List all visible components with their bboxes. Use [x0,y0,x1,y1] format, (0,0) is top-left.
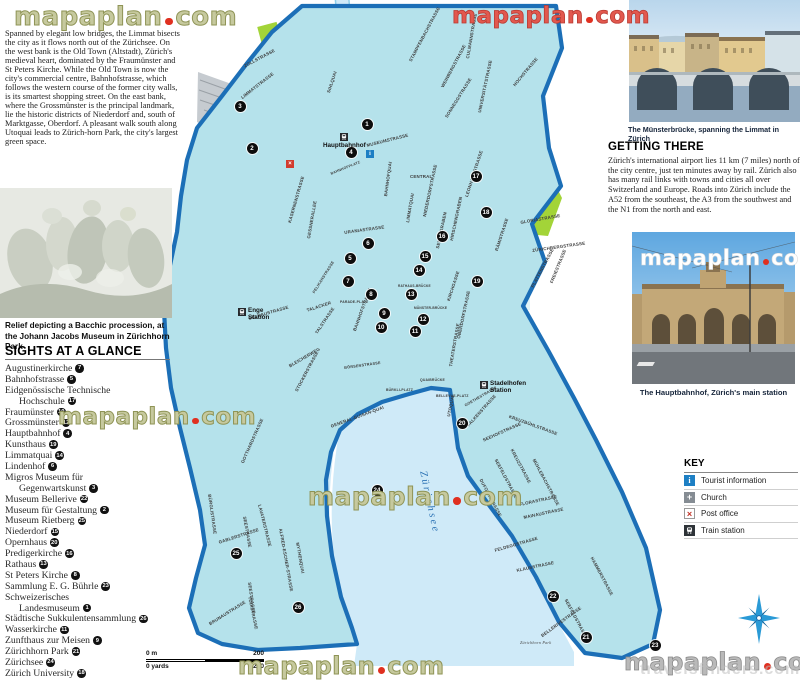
logo-tld: com [175,2,237,32]
sight-number-badge: 24 [46,658,55,667]
key-list: iTourist information+Church×Post officeT… [684,473,798,539]
munsterbrucke-photo [629,0,800,122]
sight-item: Opernhaus20 [5,537,179,548]
key-item-label: Train station [701,526,745,535]
sight-number-badge: 5 [67,375,76,384]
map-key: KEY iTourist information+Church×Post off… [684,458,798,539]
tourist-info-icon: i [684,475,695,486]
sight-label: Limmatquai [5,450,52,461]
sight-number-badge: 6 [48,462,57,471]
sight-label: Kunsthaus [5,439,46,450]
key-item-label: Post office [701,509,738,518]
sight-number-badge: 26 [139,615,148,624]
logo-text: mapaplan [14,2,162,32]
sights-heading: SIGHTS AT A GLANCE [5,344,142,358]
sight-label: Schweizerisches [5,592,69,603]
sight-number-badge: 19 [49,440,58,449]
sight-number-badge: 4 [63,429,72,438]
mapaplan-watermark: mapaplancom [452,3,650,29]
sight-item: Museum Rietberg25 [5,515,179,526]
sight-label: Wasserkirche [5,624,57,635]
key-item-label: Church [701,493,727,502]
getting-there-heading: GETTING THERE [608,141,800,153]
sight-number-badge: 9 [93,636,102,645]
logo-dot-icon [165,18,173,26]
sight-number-badge: 25 [78,517,87,526]
key-item: iTourist information [684,473,798,490]
watermark-text: com [387,652,444,680]
sight-item: SchweizerischesLandesmuseum1 [5,592,179,614]
sight-label: Bahnhofstrasse [5,374,64,385]
sight-item: St Peters Kirche8 [5,570,179,581]
key-item: +Church [684,490,798,507]
watermark-text: mapaplan [238,652,375,680]
compass-rose-icon [736,592,782,648]
sight-item: Zunfthaus zur Meisen9 [5,635,179,646]
sight-label: Augustinerkirche [5,363,72,374]
sight-number-badge: 13 [39,560,48,569]
key-heading: KEY [684,458,798,473]
logo-dot-icon [586,17,593,24]
sight-label: Opernhaus [5,537,47,548]
sight-item: Museum für Gestaltung2 [5,505,179,516]
sight-number-badge: 22 [80,495,89,504]
sight-item: Predigerkirche16 [5,548,179,559]
sight-label: Museum Rietberg [5,515,75,526]
mapaplan-watermark: mapaplancom [308,482,523,511]
sight-number-badge: 18 [77,669,86,678]
sight-label: Eidgenössische Technische [5,385,110,396]
sight-label: Städtische Sukkulentensammlung [5,613,136,624]
sight-item: Städtische Sukkulentensammlung26 [5,613,179,624]
sight-number-badge: 21 [72,647,81,656]
train-station-icon [684,525,695,536]
watermark-text: mapaplan [58,404,190,430]
sight-label: Sammlung E. G. Bührle [5,581,98,592]
sight-item: Bahnhofstrasse5 [5,374,179,385]
sight-number-badge: 20 [50,538,59,547]
sight-label: Predigerkirche [5,548,62,559]
church-icon: + [684,492,695,503]
sight-label: Zürich University [5,668,74,679]
sight-item: Rathaus13 [5,559,179,570]
relief-photo [0,188,172,318]
sight-label: Grossmünster [5,417,59,428]
key-item: Train station [684,523,798,540]
sight-item: Limmatquai14 [5,450,179,461]
key-item-label: Tourist information [701,476,766,485]
sight-number-badge: 3 [89,484,98,493]
sight-number-badge: 1 [83,604,92,613]
sight-item: Museum Bellerive22 [5,494,179,505]
watermark-text: mapaplan [308,482,451,511]
sight-label: Migros Museum für [5,472,83,483]
watermark-text: com [463,482,523,511]
sight-label: Zürichsee [5,657,43,668]
sight-item: Niederdorf15 [5,526,179,537]
sight-number-badge: 11 [60,626,69,635]
mapaplan-watermark: mapaplancom [238,652,444,680]
sight-label: Niederdorf [5,526,48,537]
sight-item: Wasserkirche11 [5,624,179,635]
logo-dot-icon [378,667,385,674]
sight-item: Sammlung E. G. Bührle23 [5,581,179,592]
intro-paragraph: Spanned by elegant low bridges, the Limm… [5,29,182,146]
hauptbahnhof-caption: The Hauptbahnhof, Zürich's main station [632,388,795,397]
watermark-text: mapaplan [452,3,584,29]
sight-label: Landesmuseum [19,603,80,614]
getting-there-section: GETTING THERE Zürich's international air… [608,141,800,214]
watermark-text: com [201,404,256,430]
sight-item: Lindenhof6 [5,461,179,472]
mapaplan-watermark: mapaplancom [58,404,256,430]
sight-number-badge: 23 [101,582,110,591]
sight-number-badge: 15 [51,528,60,537]
sight-number-badge: 7 [75,364,84,373]
sight-item: Kunsthaus19 [5,439,179,450]
sights-rule [5,359,170,360]
sight-number-badge: 14 [55,451,64,460]
mapaplan-logo[interactable]: mapaplancom [14,2,237,32]
sight-number-badge: 2 [100,506,109,515]
sight-label: Zürichhorn Park [5,646,69,657]
sight-label: Gegenwartskunst [19,483,86,494]
scale-m0: 0 m [146,650,157,657]
sight-item: Augustinerkirche7 [5,363,179,374]
logo-dot-icon [192,418,199,425]
sight-label: St Peters Kirche [5,570,68,581]
scale-y0: 0 yards [146,663,169,670]
sight-label: Hauptbahnhof [5,428,60,439]
sight-number-badge: 16 [65,549,74,558]
key-item: ×Post office [684,506,798,523]
sight-label: Rathaus [5,559,36,570]
sight-label: Fraumünster [5,407,54,418]
sight-item: Migros Museum fürGegenwartskunst3 [5,472,179,494]
sight-label: Lindenhof [5,461,45,472]
post-office-icon: × [684,508,695,519]
mapaplan-watermark: mapaplancom [640,246,800,270]
sight-number-badge: 8 [71,571,80,580]
travelsfinders-watermark: travelsfinders.com [640,661,800,679]
sight-label: Museum für Gestaltung [5,505,97,516]
logo-dot-icon [453,497,461,505]
sight-label: Museum Bellerive [5,494,77,505]
watermark-text: mapaplan [640,246,761,270]
logo-dot-icon [763,259,769,265]
sight-label: Zunfthaus zur Meisen [5,635,90,646]
watermark-text: com [771,246,800,270]
getting-there-body: Zürich's international airport lies 11 k… [608,156,800,214]
watermark-text: com [595,3,650,29]
